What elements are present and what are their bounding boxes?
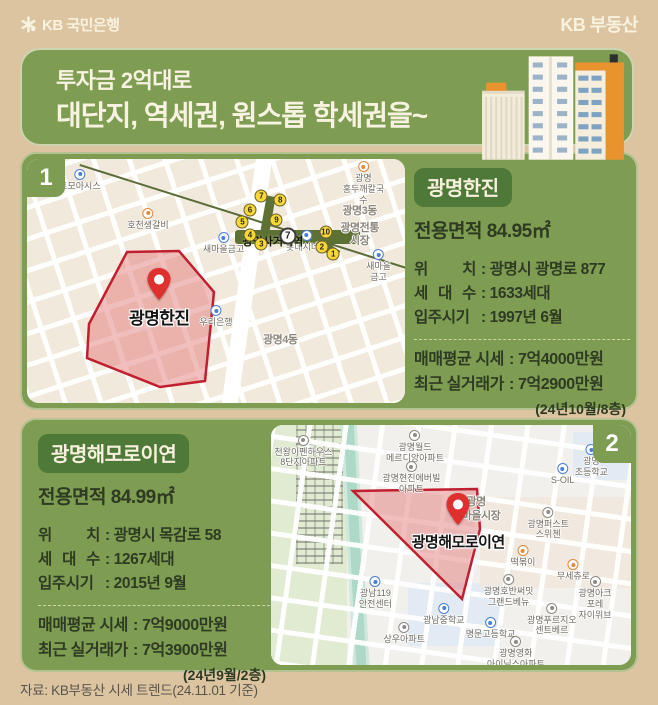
map-place-label: 새마을금고 <box>203 232 244 255</box>
exit-number-badge: 4 <box>244 228 257 241</box>
exit-number-badge: 8 <box>274 194 287 207</box>
poi-icon <box>568 559 579 570</box>
info-row: 세 대 수: 1633세대 <box>414 282 630 306</box>
poi-icon <box>298 435 309 446</box>
kb-star-icon <box>20 16 37 33</box>
poi-icon <box>211 305 222 316</box>
map-place-label: 토모아시스 <box>59 169 100 192</box>
price-row: 최근 실거래가: 7억2900만원 <box>414 373 630 398</box>
map-gwangmyeong-haemoro: 천왕이펜하우스 8단지아파트 광명월드 메르디앙아파트 광명현진에버빌 아파트 … <box>271 425 631 665</box>
section-number-badge-1: 1 <box>27 159 65 197</box>
poi-icon <box>218 232 229 243</box>
section-number-badge-2: 2 <box>593 425 631 463</box>
poi-icon <box>370 576 381 587</box>
exit-number-badge: 9 <box>270 214 283 227</box>
map-place-label: 광명영화 아이닉스아파트 <box>487 636 545 665</box>
map-place-label: 호천생갈비 <box>127 208 168 231</box>
map-pin-icon <box>445 492 471 526</box>
bank-logo-text: KB 국민은행 <box>42 14 120 35</box>
poi-icon <box>543 507 554 518</box>
footer-source: 자료: KB부동산 시세 트렌드(24.11.01 기준) <box>20 679 258 699</box>
poi-icon <box>438 603 449 614</box>
poi-icon <box>399 622 410 633</box>
map-place-label: 광명푸르지오 센트베르 <box>527 603 577 637</box>
exit-number-badge: 6 <box>244 204 257 217</box>
map-place-label: 우리은행 <box>199 305 232 328</box>
poi-icon <box>410 430 421 441</box>
price-row: 매매평균 시세: 7억9000만원 <box>38 614 270 639</box>
area-label: 전용면적 84.99㎡ <box>38 482 270 509</box>
complex-name-badge: 광명한진 <box>414 168 512 207</box>
dashed-divider <box>414 339 630 340</box>
banner-line2: 대단지, 역세권, 원스톱 학세권을~ <box>56 94 427 134</box>
infographic-page: KB 국민은행 KB 부동산 투자금 2억대로 대단지, 역세권, 원스톱 학세… <box>0 0 658 705</box>
info-row: 입주시기: 2015년 9월 <box>38 572 270 596</box>
poi-icon <box>503 574 514 585</box>
exit-number-badge: 7 <box>255 189 268 202</box>
kb-bank-logo: KB 국민은행 <box>20 14 120 35</box>
map-place-label: 광남119 안전센터 <box>359 576 392 610</box>
map-place-label: 떡볶이 <box>511 545 536 568</box>
poi-icon <box>518 545 529 556</box>
poi-icon <box>546 603 557 614</box>
pin-label: 광명해모로이연 <box>412 531 505 552</box>
apartment-buildings-icon <box>478 50 630 160</box>
complex-card-1: 광명사거리역 7 78659431021 토모아시스 호천생갈비 광명 홍두깨칼… <box>20 152 638 410</box>
map-place-label: 새마을금고 <box>365 249 391 283</box>
map-place-label: 천왕이펜하우스 8단지아파트 <box>274 435 332 469</box>
map-place-label: 광남중학교 <box>423 603 464 626</box>
map-place-label: 광명4동 <box>263 334 297 347</box>
price-rows: 매매평균 시세: 7억4000만원 최근 실거래가: 7억2900만원 <box>414 348 630 398</box>
map-place-label: S-OIL <box>551 463 575 486</box>
map-place-label: 상우아파트 <box>383 622 424 645</box>
poi-icon <box>142 208 153 219</box>
poi-icon <box>74 169 85 180</box>
dashed-divider <box>38 605 270 606</box>
poi-icon <box>485 617 496 628</box>
info-row: 위 치: 광명시 목감로 58 <box>38 524 270 548</box>
info-rows: 위 치: 광명시 광명로 877 세 대 수: 1633세대 입주시기: 199… <box>414 258 630 330</box>
poi-icon <box>358 161 369 172</box>
map-place-label: 광명아크포레 자이위브 <box>577 576 613 620</box>
info-row: 세 대 수: 1267세대 <box>38 548 270 572</box>
area-label: 전용면적 84.95㎡ <box>414 216 630 243</box>
app-header: KB 국민은행 KB 부동산 <box>20 10 638 38</box>
exit-number-badge: 10 <box>319 226 332 239</box>
complex-info-panel-2: 광명해모로이연 전용면적 84.99㎡ 위 치: 광명시 목감로 58 세 대 … <box>38 434 270 685</box>
complex-name-badge: 광명해모로이연 <box>38 434 189 473</box>
map-place-label: 광명전통시장 <box>337 222 382 248</box>
price-rows: 매매평균 시세: 7억9000만원 최근 실거래가: 7억3900만원 <box>38 614 270 664</box>
kb-realestate-brand: KB 부동산 <box>560 11 638 37</box>
pin-label: 광명한진 <box>129 304 190 329</box>
complex-info-panel-1: 광명한진 전용면적 84.95㎡ 위 치: 광명시 광명로 877 세 대 수:… <box>414 168 630 419</box>
map-place-label: 광명 홍두깨칼국수 <box>343 161 385 205</box>
map-pin-icon <box>146 267 172 301</box>
subway-line-number-badge: 7 <box>279 227 296 244</box>
map-place-label: 광명현진에버빌 아파트 <box>382 461 440 495</box>
map-place-label: 광명3동 <box>342 205 376 218</box>
map-gwangmyeong-hanjin: 광명사거리역 7 78659431021 토모아시스 호천생갈비 광명 홍두깨칼… <box>27 159 405 403</box>
price-row: 매매평균 시세: 7억4000만원 <box>414 348 630 373</box>
info-row: 위 치: 광명시 광명로 877 <box>414 258 630 282</box>
poi-icon <box>590 576 601 587</box>
map-place-label: 광명월드 메르디앙아파트 <box>386 430 444 464</box>
price-note: (24년10월/8층) <box>414 399 630 419</box>
exit-number-badge: 5 <box>236 216 249 229</box>
complex-card-2: 천왕이펜하우스 8단지아파트 광명월드 메르디앙아파트 광명현진에버빌 아파트 … <box>20 418 638 672</box>
poi-icon <box>557 463 568 474</box>
poi-icon <box>510 636 521 647</box>
exit-number-badge: 3 <box>255 238 268 251</box>
exit-number-badge: 1 <box>327 248 340 261</box>
price-row: 최근 실거래가: 7억3900만원 <box>38 639 270 664</box>
map-place-label: 광명퍼스트 스위첸 <box>527 507 568 541</box>
banner-line1: 투자금 2억대로 <box>56 63 192 95</box>
poi-icon <box>406 461 417 472</box>
info-row: 입주시기: 1997년 6월 <box>414 306 630 330</box>
info-rows: 위 치: 광명시 목감로 58 세 대 수: 1267세대 입주시기: 2015… <box>38 524 270 596</box>
poi-icon <box>373 249 384 260</box>
